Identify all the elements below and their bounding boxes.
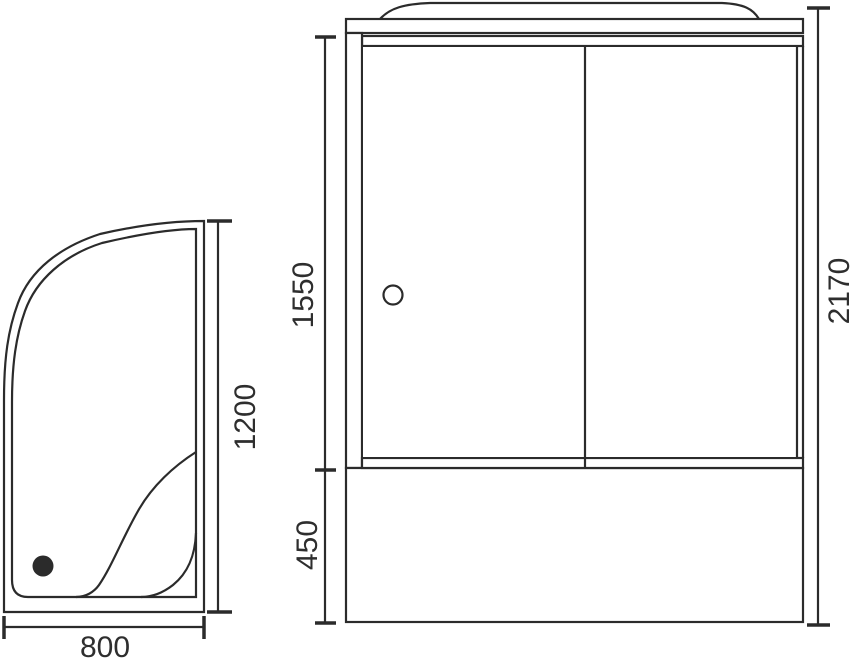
tray-top-view [4, 221, 204, 612]
left-frame-profile [346, 33, 362, 468]
dim-tray-width: 800 [4, 616, 204, 658]
tray-outer-wall [4, 221, 204, 612]
dim-tray-width-label: 800 [80, 631, 130, 658]
door-track-bottom [362, 458, 803, 468]
left-door-panel [363, 47, 584, 457]
drain-icon [33, 556, 54, 577]
roof-dome [380, 3, 759, 19]
technical-drawing: 1200 800 [0, 0, 853, 658]
right-door-panel [586, 47, 796, 457]
drawing-svg: 1200 800 [0, 0, 853, 658]
dim-tray-depth-label: 1200 [229, 384, 262, 451]
dim-tray-depth: 1200 [207, 221, 262, 612]
dim-base-height-label: 450 [291, 520, 324, 570]
dim-cabin-total-height: 2170 [807, 8, 853, 625]
dim-door-height-label: 1550 [287, 262, 320, 329]
dim-total-height-label: 2170 [823, 258, 853, 325]
dim-cabin-left: 1550 450 [287, 37, 336, 623]
cabin-front-view [346, 3, 803, 622]
door-track-top [362, 36, 803, 46]
base-panel [346, 468, 803, 622]
top-frame-bar [346, 19, 803, 33]
